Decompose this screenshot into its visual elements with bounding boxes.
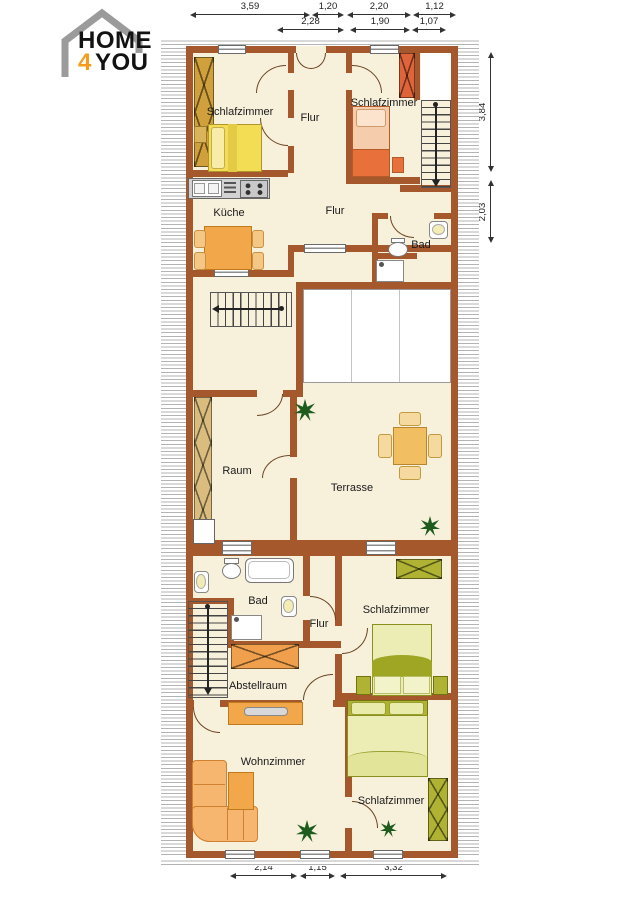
- kitchen-sink-basin: [194, 183, 205, 194]
- wall-segment: [288, 245, 294, 277]
- plant-icon: [420, 516, 440, 541]
- dim-right: 2,03: [482, 180, 498, 243]
- bed-pillow: [374, 676, 401, 694]
- wall-segment: [346, 177, 420, 184]
- dim-top: 1,12: [413, 1, 456, 17]
- dim-top: 2,20: [347, 1, 411, 17]
- nightstand: [392, 157, 404, 173]
- window: [225, 850, 255, 859]
- bed-pillow: [211, 127, 225, 169]
- wardrobe: [396, 559, 442, 579]
- toilet: [388, 242, 408, 257]
- stair-landing: [421, 53, 451, 100]
- wall-segment: [335, 556, 342, 626]
- bed-blanket: [228, 124, 237, 172]
- wall-segment: [186, 700, 194, 707]
- roof-void: [303, 289, 451, 383]
- sideboard-tray: [244, 707, 288, 716]
- wall-segment: [296, 282, 451, 289]
- chair: [194, 252, 206, 270]
- stair-arrow-dot: [279, 306, 284, 311]
- kitchen-vent: [224, 182, 236, 195]
- logo-text-4: 4: [78, 51, 92, 75]
- nightstand: [433, 676, 448, 695]
- plant-icon: [294, 399, 316, 426]
- bed-pillow: [356, 109, 386, 127]
- wall-segment: [290, 478, 297, 545]
- dim-top: 1,07: [412, 16, 446, 32]
- room-label-bath-top: Bad: [411, 239, 431, 251]
- wardrobe: [194, 397, 212, 533]
- bathtub-inner: [248, 561, 290, 579]
- dim-top: 3,59: [190, 1, 310, 17]
- storage-cabinet: [231, 644, 299, 669]
- window: [373, 850, 403, 859]
- room-label-hall-top: Flur: [301, 112, 320, 124]
- wall-segment: [288, 90, 294, 118]
- wardrobe: [399, 53, 415, 98]
- roof-hatch-left: [161, 38, 186, 866]
- bed-blanket: [372, 655, 432, 677]
- room-label-kitchen: Küche: [213, 207, 244, 219]
- logo-text-you: YOU: [95, 51, 149, 75]
- plant-icon: [380, 820, 397, 842]
- bathroom-sink-bowl: [432, 224, 445, 235]
- wall-segment: [345, 828, 352, 851]
- toilet: [222, 563, 241, 579]
- chair: [252, 252, 264, 270]
- window: [222, 541, 252, 555]
- stair-arrow-dot: [205, 604, 210, 609]
- dim-top: 1,90: [350, 16, 410, 32]
- sofa-cushion-line: [194, 784, 225, 785]
- room-label-bedroom-mid-right: Schlafzimmer: [363, 604, 430, 616]
- room-label-bedroom-top-right: Schlafzimmer: [351, 97, 418, 109]
- wall-segment: [335, 654, 342, 704]
- window: [300, 850, 330, 859]
- storage-box: [193, 519, 215, 544]
- nightstand: [356, 676, 371, 695]
- roof-void-divider: [399, 290, 400, 382]
- wardrobe: [428, 778, 448, 841]
- bed-pillow: [389, 702, 424, 715]
- nightstand: [194, 126, 207, 143]
- room-label-raum: Raum: [222, 465, 251, 477]
- chair: [252, 230, 264, 248]
- room-label-bedroom-top-left: Schlafzimmer: [207, 106, 274, 118]
- plant-icon: [296, 820, 318, 847]
- bathroom-sink-bowl: [283, 599, 294, 613]
- coffee-table: [228, 772, 254, 810]
- chair: [399, 412, 421, 426]
- roof-hatch-right: [458, 38, 479, 866]
- shower-head: [234, 617, 239, 622]
- floor-plan: HOME 4 YOU 3,59 1,20 2,20 1,12 2,28 1,90…: [0, 0, 635, 900]
- room-label-terrace: Terrasse: [331, 482, 373, 494]
- stair-arrow: [207, 606, 209, 690]
- bathroom-sink-bowl: [196, 574, 206, 589]
- roof-hatch-bottom: [161, 858, 479, 866]
- bed-blanket: [348, 751, 427, 776]
- kitchen-sink-basin: [208, 183, 219, 194]
- stair-arrow: [218, 308, 280, 310]
- room-label-bedroom-bottom-right: Schlafzimmer: [358, 795, 425, 807]
- wall-segment: [288, 146, 294, 173]
- bed-pillow: [351, 702, 386, 715]
- room-label-storage: Abstellraum: [229, 680, 287, 692]
- kitchen-stove: [240, 180, 268, 198]
- bed-blanket: [352, 149, 390, 177]
- stair-arrow-dot: [433, 102, 438, 107]
- terrace-table: [393, 427, 427, 465]
- sofa-cushion-line: [227, 808, 228, 840]
- chair: [194, 230, 206, 248]
- wall-segment: [434, 213, 451, 219]
- wall-segment: [303, 556, 310, 596]
- dining-table: [204, 226, 252, 270]
- roof-hatch-top: [161, 38, 479, 46]
- window: [304, 244, 346, 253]
- dim-top: 2,28: [277, 16, 344, 32]
- window: [366, 541, 396, 555]
- chair: [378, 434, 392, 458]
- wall-segment: [451, 46, 458, 858]
- stair-arrow-head: [432, 180, 440, 187]
- room-label-hall-middle: Flur: [326, 205, 345, 217]
- entry-opening: [296, 46, 326, 53]
- bed-pillow: [403, 676, 430, 694]
- stair-arrow-head: [204, 688, 212, 695]
- dim-right: 3,84: [482, 52, 498, 172]
- stair-arrow: [435, 104, 437, 182]
- chair: [428, 434, 442, 458]
- wall-segment: [186, 46, 193, 858]
- dim-top: 1,20: [312, 1, 344, 17]
- sofa: [192, 806, 258, 842]
- sofa-cushion-line: [243, 808, 244, 840]
- window: [218, 45, 246, 54]
- room-label-bath-lower: Bad: [248, 595, 268, 607]
- wall-segment: [288, 53, 294, 73]
- wall-segment: [186, 390, 257, 397]
- chair: [399, 466, 421, 480]
- room-label-living-room: Wohnzimmer: [241, 756, 306, 768]
- room-label-hall-lower: Flur: [310, 618, 329, 630]
- wall-segment: [296, 282, 303, 397]
- window: [370, 45, 399, 54]
- roof-void-divider: [351, 290, 352, 382]
- stair-arrow-head: [212, 305, 219, 313]
- shower-head: [379, 262, 384, 267]
